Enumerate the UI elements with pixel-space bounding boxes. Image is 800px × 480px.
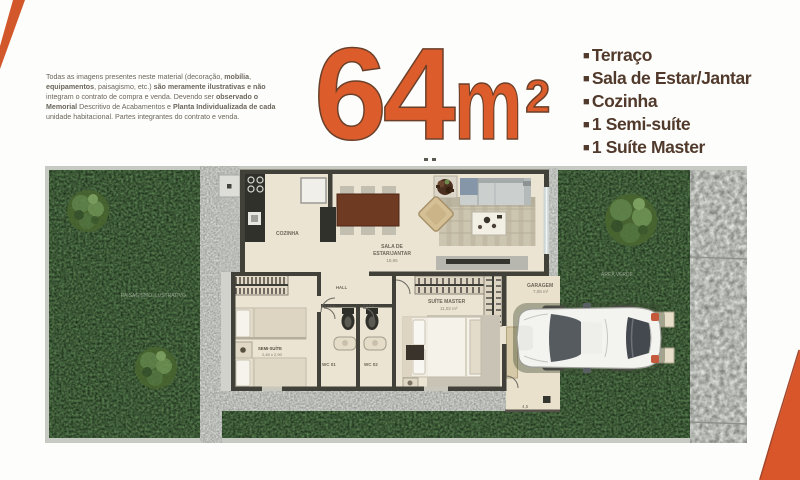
svg-text:PAISAGISMO ILUSTRATIVO: PAISAGISMO ILUSTRATIVO [121,293,186,299]
svg-text:18,95: 18,95 [386,258,398,263]
svg-text:7,08 m²: 7,08 m² [533,289,549,294]
svg-text:ESTAR/JANTAR: ESTAR/JANTAR [373,251,411,257]
svg-text:11,02 m²: 11,02 m² [440,306,458,311]
svg-text:COZINHA: COZINHA [276,231,299,237]
svg-text:HALL: HALL [336,285,348,290]
svg-text:SALA DE: SALA DE [381,244,403,250]
svg-text:4,5: 4,5 [522,404,529,409]
svg-text:SEMI-SUÍTE: SEMI-SUÍTE [258,346,282,351]
svg-text:WC 01: WC 01 [322,362,336,367]
svg-text:WC 02: WC 02 [364,362,378,367]
svg-text:SUÍTE MASTER: SUÍTE MASTER [428,297,466,305]
svg-text:2,45 x 2,90: 2,45 x 2,90 [262,352,283,357]
svg-text:ÁREA VERDE: ÁREA VERDE [601,271,634,278]
